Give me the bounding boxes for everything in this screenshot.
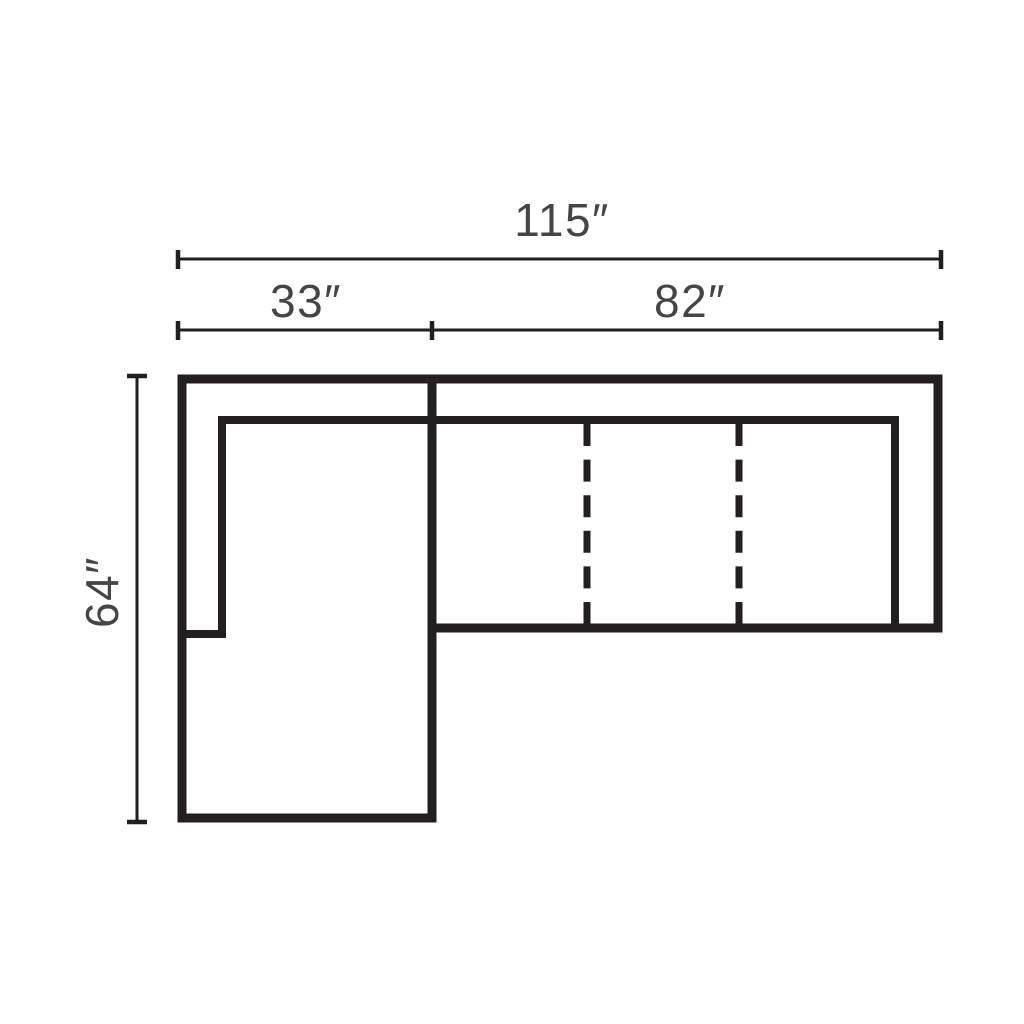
sectional-sofa-dimension-diagram: 115″ 33″ 82″ 64″ bbox=[0, 0, 1024, 1024]
sofa-outer-boundary bbox=[182, 379, 938, 818]
sofa-outline-group bbox=[180, 379, 938, 818]
total-width-dimension bbox=[178, 250, 941, 269]
chaise-width-label: 33″ bbox=[270, 275, 342, 327]
total-width-label: 115″ bbox=[514, 194, 610, 246]
sofa-width-label: 82″ bbox=[654, 275, 726, 327]
depth-label: 64″ bbox=[76, 556, 128, 628]
depth-dimension bbox=[127, 376, 147, 822]
diagram-canvas: 115″ 33″ 82″ 64″ bbox=[0, 0, 1024, 1024]
